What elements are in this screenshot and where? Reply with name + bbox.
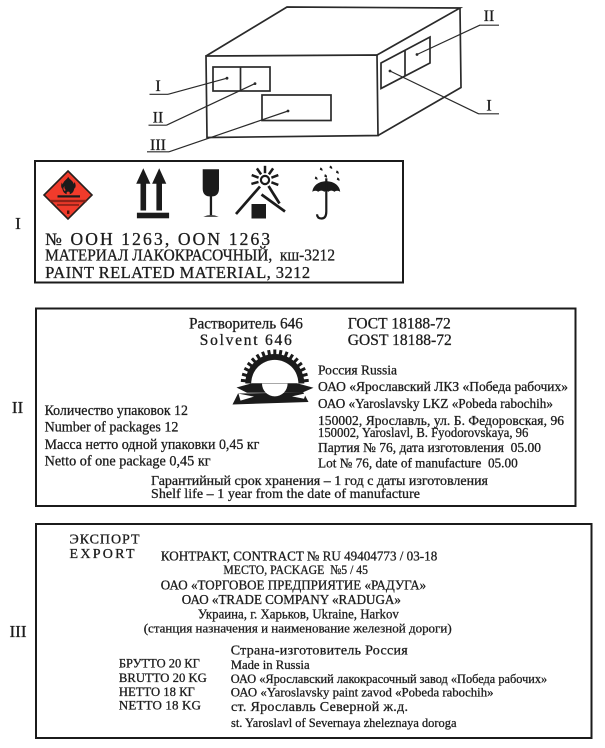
svg-text:ст. Ярославль Северной ж.д.: ст. Ярославль Северной ж.д. [231, 700, 408, 715]
svg-text:I: I [155, 78, 160, 95]
svg-text:Украина, г. Харьков, Ukraine,: Украина, г. Харьков, Ukraine, Harkov [198, 606, 399, 621]
svg-text:II: II [153, 110, 164, 127]
svg-text:Solvent 646: Solvent 646 [200, 332, 292, 349]
svg-text:Россия Russia: Россия Russia [318, 362, 397, 377]
svg-text:PAINT RELATED MATERIAL, 3212: PAINT RELATED MATERIAL, 3212 [45, 263, 310, 282]
svg-text:Страна-изготовитель Россия: Страна-изготовитель Россия [231, 643, 409, 658]
svg-text:МАТЕРИАЛ ЛАКОКРАСОЧНЫЙ, кш-32: МАТЕРИАЛ ЛАКОКРАСОЧНЫЙ, кш-3212 [45, 245, 335, 265]
svg-text:II: II [484, 8, 495, 25]
svg-text:Lot № 76, date of manufacture: Lot № 76, date of manufacture 05.00 [318, 455, 518, 470]
svg-text:st. Yaroslavl of Severnaya zhe: st. Yaroslavl of Severnaya zheleznaya do… [231, 716, 457, 730]
svg-text:ЭКСПОРТ: ЭКСПОРТ [70, 532, 140, 547]
svg-text:II: II [12, 398, 24, 417]
svg-text:III: III [10, 622, 27, 641]
svg-text:III: III [150, 137, 166, 154]
svg-text:I: I [15, 214, 21, 233]
svg-text:ОАО «ТОРГОВОЕ ПРЕДПРИЯТИЕ «РАД: ОАО «ТОРГОВОЕ ПРЕДПРИЯТИЕ «РАДУГА» [161, 577, 426, 592]
svg-text:Made in Russia: Made in Russia [231, 658, 310, 672]
svg-text:МЕСТО, PACKAGE №5 / 45: МЕСТО, PACKAGE №5 / 45 [223, 562, 368, 577]
svg-text:GOST 18188-72: GOST 18188-72 [348, 332, 452, 349]
svg-text:КОНТРАКТ, CONTRACT № RU 494047: КОНТРАКТ, CONTRACT № RU 49404773 / 03-18 [161, 548, 438, 563]
svg-text:150002, Yaroslavl, B. Fyodorov: 150002, Yaroslavl, B. Fyodorovskaya, 96 [318, 425, 529, 440]
svg-text:ОАО «Ярославский лакокрасочный: ОАО «Ярославский лакокрасочный завод «По… [231, 672, 548, 686]
svg-text:№ ООН 1263, ООN 1263: № ООН 1263, ООN 1263 [45, 229, 270, 249]
svg-text:БРУТТО 20 КГ: БРУТТО 20 КГ [119, 656, 200, 670]
svg-text:ОАО «TRADE COMPANY «RADUGA»: ОАО «TRADE COMPANY «RADUGA» [182, 592, 401, 607]
svg-text:ОАО «Yaroslavsky LKZ «Pobeda r: ОАО «Yaroslavsky LKZ «Pobeda rabochih» [318, 396, 553, 411]
svg-text:ГОСТ 18188-72: ГОСТ 18188-72 [348, 315, 451, 332]
svg-text:Number of packages 12: Number of packages 12 [45, 419, 179, 435]
svg-text:I: I [486, 98, 491, 115]
svg-text:(станция назначения и наименов: (станция назначения и наименование желез… [144, 621, 452, 636]
svg-text:Количество упаковок 12: Количество упаковок 12 [45, 403, 188, 419]
svg-text:Shelf life – 1 year from the d: Shelf life – 1 year from the date of man… [151, 487, 420, 502]
svg-text:Netto of one package 0,45 кг: Netto of one package 0,45 кг [45, 453, 211, 469]
svg-text:Партия № 76, дата изготовления: Партия № 76, дата изготовления 05.00 [318, 440, 541, 455]
svg-text:ОАО «Ярославский ЛКЗ «Победа р: ОАО «Ярославский ЛКЗ «Победа рабочих» [318, 379, 568, 394]
svg-text:Растворитель 646: Растворитель 646 [189, 315, 303, 332]
svg-text:BRUTTO 20 KG: BRUTTO 20 KG [119, 671, 207, 685]
svg-text:ОАО «Yaroslavsky paint zavod «: ОАО «Yaroslavsky paint zavod «Pobeda rab… [231, 686, 494, 700]
svg-text:Масса нетто одной упаковки 0,4: Масса нетто одной упаковки 0,45 кг [45, 437, 260, 453]
svg-text:NETTO 18 KG: NETTO 18 KG [119, 698, 201, 713]
